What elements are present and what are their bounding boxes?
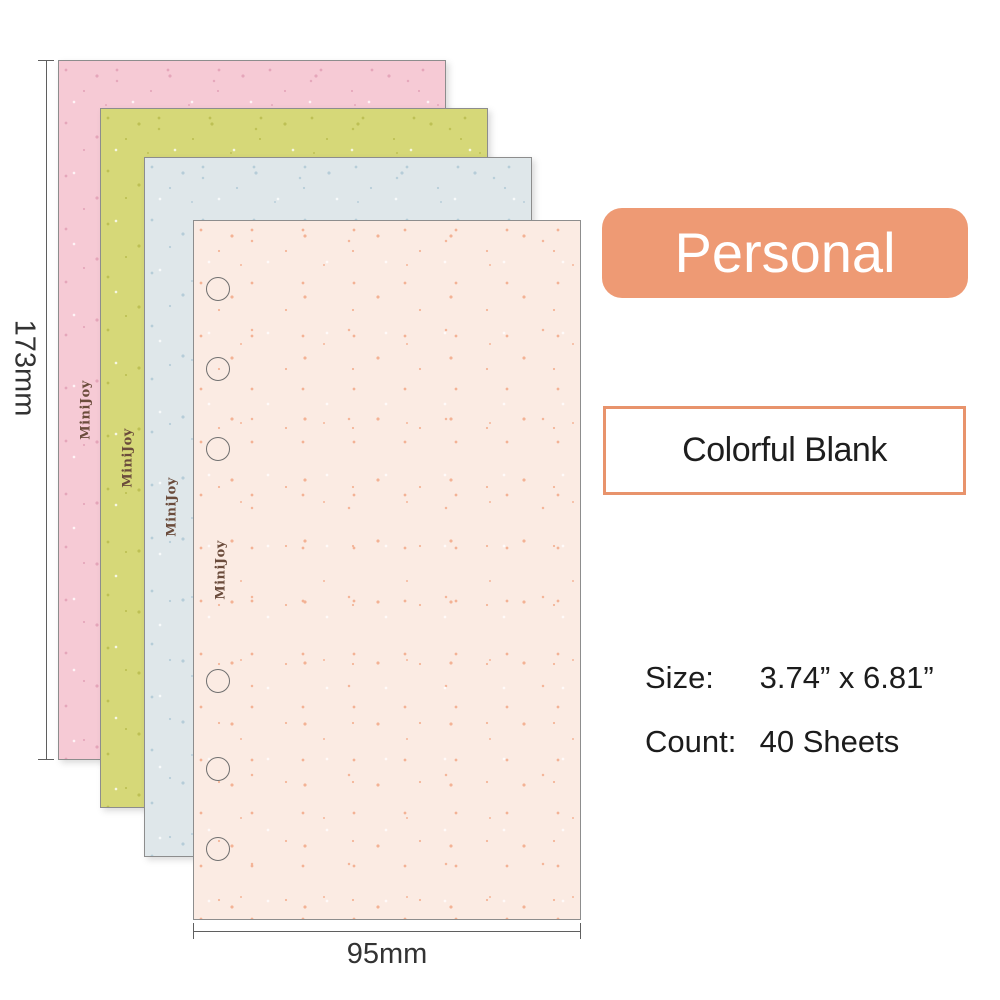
size-badge: Personal (602, 208, 968, 298)
variant-label: Colorful Blank (682, 431, 887, 469)
punch-hole (206, 757, 230, 781)
brand-label: MiniJoy (214, 540, 229, 600)
punch-hole (206, 437, 230, 461)
brand-label: MiniJoy (79, 380, 94, 440)
spec-size-row: Size: 3.74” x 6.81” (645, 660, 934, 724)
punch-hole (206, 277, 230, 301)
paper-sheet-peach: MiniJoy (193, 220, 581, 920)
spec-list: Size: 3.74” x 6.81” Count: 40 Sheets (645, 660, 934, 788)
width-dimension-line (193, 931, 581, 932)
punch-hole (206, 357, 230, 381)
product-showcase: MiniJoy MiniJoy MiniJoy MiniJoy 173mm 95… (0, 0, 1000, 1000)
punch-hole (206, 837, 230, 861)
height-dimension-line (46, 60, 47, 760)
brand-label: MiniJoy (121, 428, 136, 488)
size-badge-label: Personal (674, 221, 895, 284)
punch-hole (206, 669, 230, 693)
height-dimension-label: 173mm (8, 320, 41, 417)
spec-size-label: Size: (645, 660, 751, 696)
variant-label-box: Colorful Blank (603, 406, 966, 495)
spec-size-value: 3.74” x 6.81” (760, 660, 934, 696)
spec-count-label: Count: (645, 724, 751, 760)
spec-count-value: 40 Sheets (760, 724, 900, 760)
width-dimension-label: 95mm (347, 938, 428, 971)
spec-count-row: Count: 40 Sheets (645, 724, 934, 788)
brand-label: MiniJoy (165, 477, 180, 537)
